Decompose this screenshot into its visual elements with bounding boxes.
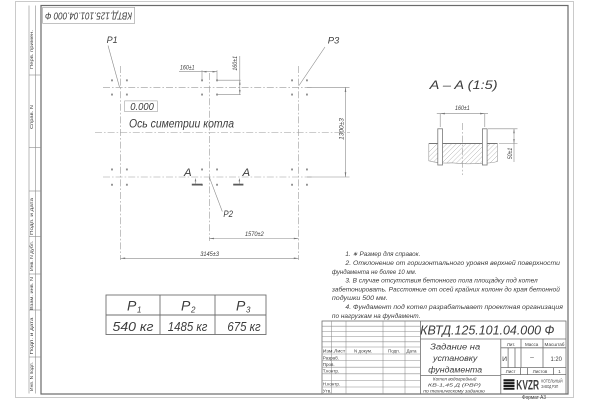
svg-text:ЗАВОД РЭП: ЗАВОД РЭП: [541, 384, 558, 389]
svg-text:Справ. N: Справ. N: [29, 105, 34, 129]
svg-text:Листов: Листов: [533, 369, 548, 374]
svg-text:по техническому заданию: по техническому заданию: [423, 388, 485, 393]
svg-text:Ось симетрии котла: Ось симетрии котла: [129, 117, 234, 131]
svg-text:Взам. инв. N: Взам. инв. N: [29, 277, 34, 310]
svg-text:540 кг: 540 кг: [113, 319, 155, 334]
svg-text:Изм.Лист: Изм.Лист: [323, 349, 346, 354]
svg-text:Задание на: Задание на: [430, 342, 480, 352]
svg-text:160±1: 160±1: [180, 65, 195, 72]
svg-text:0.000: 0.000: [130, 102, 154, 113]
svg-text:подушки 500 мм.: подушки 500 мм.: [332, 294, 388, 302]
svg-text:КОТЕЛЬНЫЙ: КОТЕЛЬНЫЙ: [541, 379, 562, 384]
svg-text:фундамента: фундамента: [428, 365, 482, 375]
svg-text:3. В случае отсутствия бето: 3. В случае отсутствия бетонного пола пл…: [345, 277, 538, 285]
svg-text:2: 2: [190, 306, 196, 315]
svg-text:Формат А3: Формат А3: [522, 395, 546, 400]
svg-text:Масштаб: Масштаб: [545, 342, 565, 347]
svg-text:KVZR: KVZR: [516, 377, 539, 392]
svg-text:160±1: 160±1: [455, 105, 470, 112]
svg-text:Инв. N подл.: Инв. N подл.: [29, 362, 34, 391]
svg-text:A: A: [183, 167, 192, 179]
svg-text:установку: установку: [432, 353, 478, 363]
svg-text:КВ-1,45 Д (РВР): КВ-1,45 Д (РВР): [428, 383, 482, 388]
svg-text:P2: P2: [223, 209, 233, 219]
svg-text:по нагрузкам на фундамент.: по нагрузкам на фундамент.: [332, 312, 421, 320]
svg-text:Пров.: Пров.: [323, 362, 335, 367]
svg-text:3: 3: [246, 306, 251, 315]
svg-text:675 кг: 675 кг: [227, 319, 261, 334]
svg-text:1570±2: 1570±2: [245, 231, 264, 238]
svg-text:160±1: 160±1: [232, 56, 239, 71]
svg-text:P3: P3: [328, 36, 340, 46]
svg-text:Перв. примен.: Перв. примен.: [29, 30, 34, 69]
svg-text:КВТД.125.101.04.000 Ф: КВТД.125.101.04.000 Ф: [420, 322, 554, 337]
svg-text:2. Отклонение от горизонтал: 2. Отклонение от горизонтального уровня …: [344, 259, 560, 267]
svg-text:Подп. и дата: Подп. и дата: [29, 197, 34, 235]
svg-text:Масса: Масса: [525, 342, 539, 347]
svg-text:A – A (1:5): A – A (1:5): [428, 79, 497, 92]
svg-text:P1: P1: [107, 35, 118, 45]
svg-text:КВТД.125.101.04.000 Ф: КВТД.125.101.04.000 Ф: [45, 9, 132, 20]
svg-text:1: 1: [137, 306, 141, 315]
svg-text:1485 кг: 1485 кг: [168, 319, 208, 334]
svg-text:1:20: 1:20: [551, 356, 562, 363]
svg-text:4. Фундамент под котел раз: 4. Фундамент под котел разрабатывает про…: [345, 303, 563, 311]
svg-text:Подп.: Подп.: [388, 349, 400, 354]
svg-text:Т.контр.: Т.контр.: [323, 369, 339, 374]
svg-text:Н.контр.: Н.контр.: [323, 382, 340, 387]
svg-text:И: И: [502, 356, 507, 363]
svg-text:Лит.: Лит.: [507, 342, 515, 347]
svg-text:1300±3: 1300±3: [338, 118, 345, 140]
svg-text:P: P: [127, 298, 137, 314]
svg-text:забетонировать. Расстояние от: забетонировать. Расстояние от осей крайн…: [331, 285, 560, 293]
svg-text:1. ∗ Размер для справок.: 1. ∗ Размер для справок.: [345, 250, 420, 258]
svg-text:фундамента не более 10 мм.: фундамента не более 10 мм.: [332, 268, 417, 276]
svg-text:P: P: [181, 298, 191, 314]
svg-text:Лист: Лист: [506, 369, 516, 374]
svg-text:Инв. N дубл.: Инв. N дубл.: [29, 241, 34, 271]
svg-text:Разраб.: Разраб.: [323, 355, 339, 360]
svg-text:–: –: [530, 355, 534, 362]
svg-text:P: P: [236, 298, 246, 314]
svg-text:A: A: [242, 167, 251, 179]
svg-text:Подп. и дата: Подп. и дата: [29, 317, 34, 355]
svg-text:3145±3: 3145±3: [200, 251, 219, 258]
svg-text:Котел водогрейный: Котел водогрейный: [433, 375, 477, 381]
svg-text:N докум.: N докум.: [354, 349, 372, 354]
svg-text:50±1: 50±1: [507, 147, 514, 159]
svg-text:Дата: Дата: [407, 349, 417, 354]
svg-text:Утв.: Утв.: [323, 388, 332, 393]
